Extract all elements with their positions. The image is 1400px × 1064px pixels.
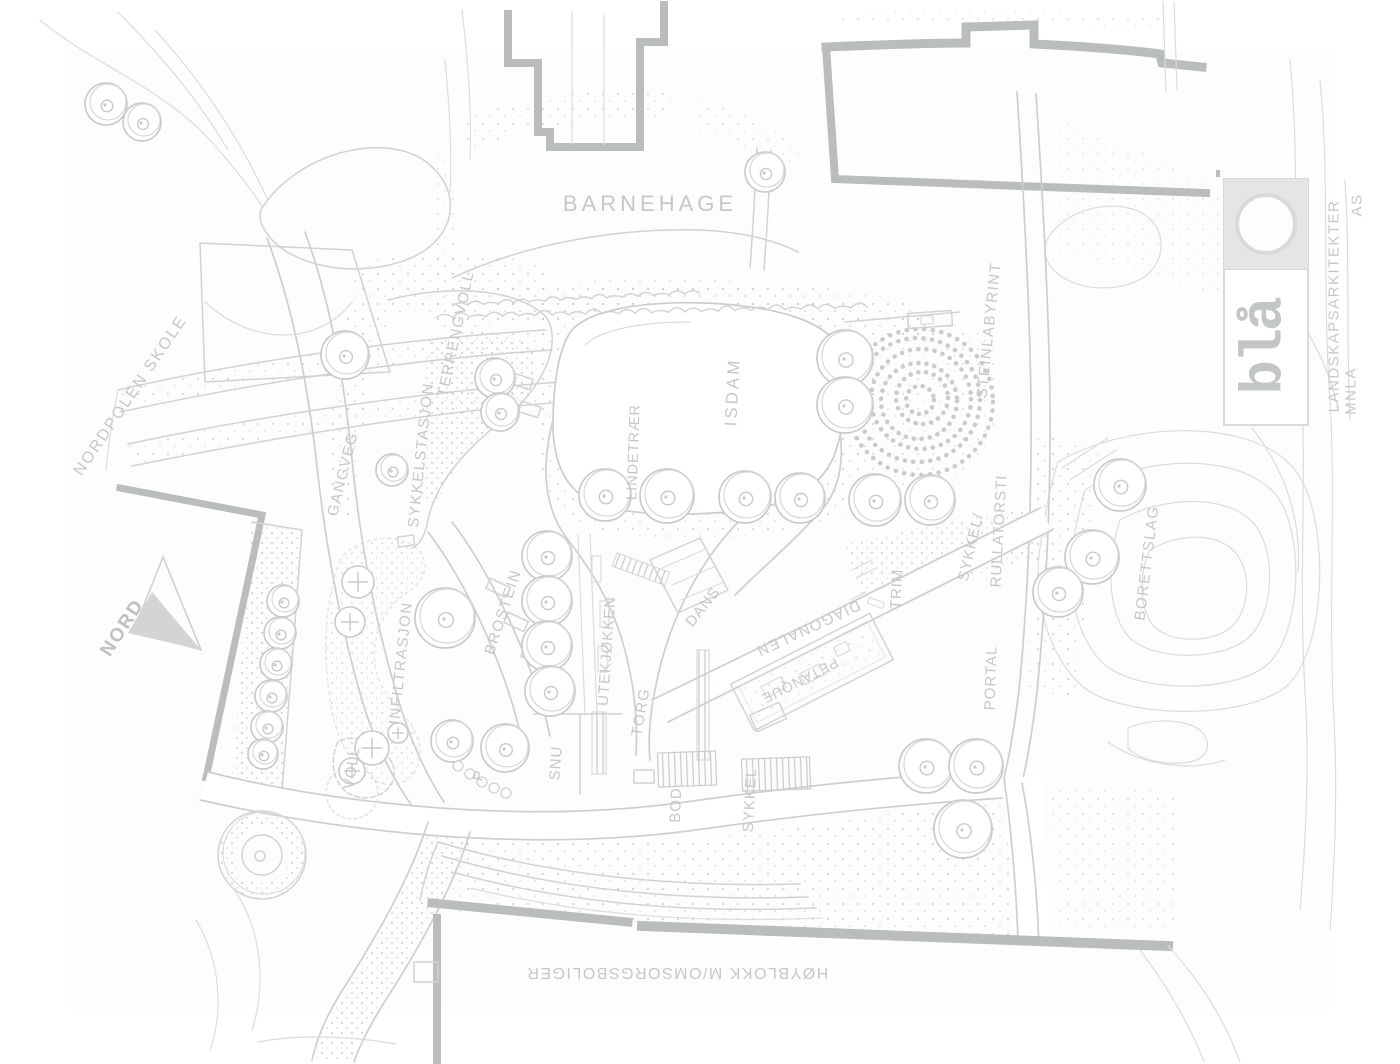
blaa-logo-wordmark-box: blå — [1223, 270, 1309, 426]
blaa-logo-circle-icon — [1235, 193, 1297, 255]
blaa-logo-symbol — [1223, 178, 1309, 270]
firm-mnla: MNLA — [1343, 367, 1360, 415]
area-label-portal: PORTAL — [981, 645, 1000, 710]
area-label-sykkel: SYKKEL — [740, 767, 760, 832]
firm-as: AS — [1349, 193, 1366, 216]
area-label-barnehage: BARNEHAGE — [563, 191, 737, 217]
area-label-hoyblokk: HØYBLOKK M/OMSORGSBOLIGER — [526, 963, 828, 981]
area-label-trim: TRIM — [887, 568, 906, 610]
site-plan-linework — [0, 0, 1400, 1064]
area-label-bod: BOD — [667, 787, 685, 823]
firm-name: LANDSKAPSARKITEKTER — [1326, 200, 1343, 413]
area-label-isdam: ISDAM — [721, 357, 745, 427]
area-label-lindetraer: LINDETRÆR — [624, 404, 643, 501]
blaa-logo-wordmark: blå — [1234, 299, 1299, 394]
blaa-logo: blå — [1223, 178, 1309, 426]
area-label-snu: SNU — [546, 745, 565, 781]
site-plan-page: NORDPOLEN SKOLE BARNEHAGE TERRENGVOLL SY… — [0, 0, 1400, 1064]
